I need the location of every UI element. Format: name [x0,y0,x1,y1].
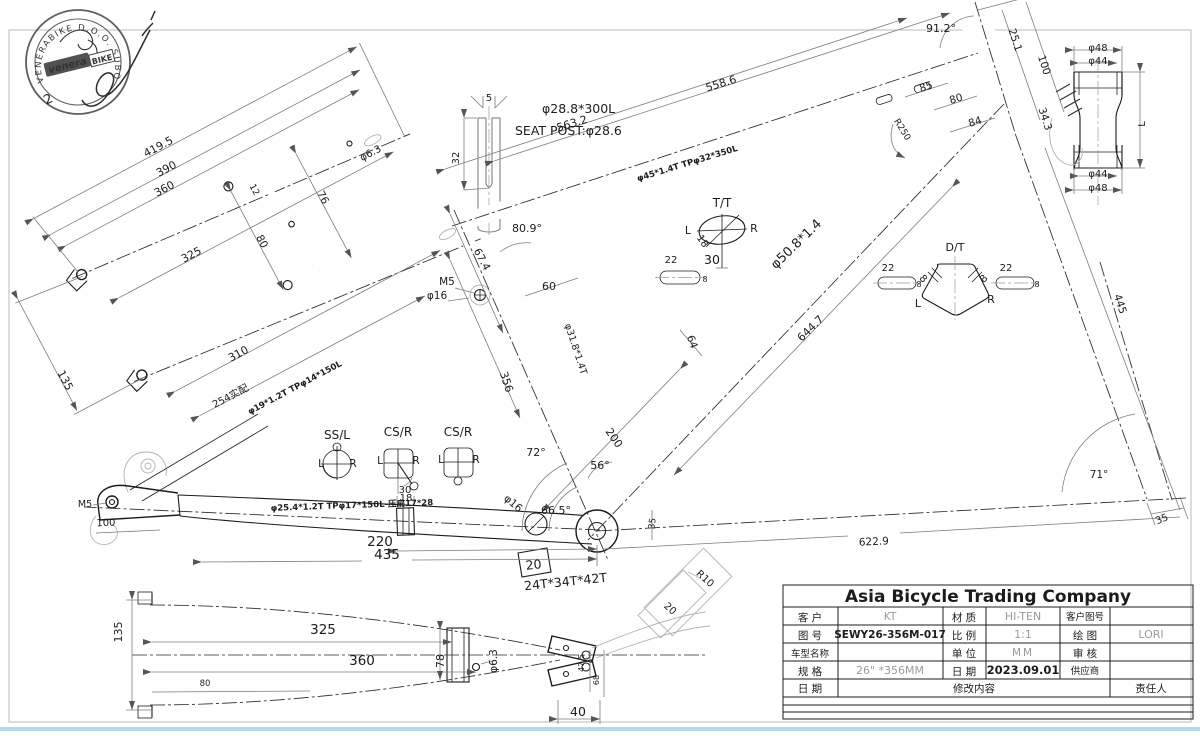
ct-dim-d63: φ6.3 [488,649,500,673]
cad-drawing: VENERABIKE D.O.O. SUBOTICA venera BIKE [0,0,1200,736]
ttd-right: R [750,222,758,235]
ss-dim-325: 325 [179,244,204,265]
slot3-8: 8 [1034,280,1039,289]
dim-35-bb: 35 [647,517,658,530]
csr2-right: R [472,454,479,466]
kickstand-20: 20 [661,601,678,618]
ss-tube-spec: φ19*1.2T TPφ14*150L [246,359,344,417]
ct-dim-360: 360 [349,653,375,669]
slot3-22: 22 [1000,263,1013,274]
slot2-22: 22 [882,263,895,274]
bottom-blue-strip [0,727,1200,731]
cs-dim-100: 100 [96,518,115,530]
tt-slot-detail [655,271,705,284]
angle-71: 71° [1090,469,1109,481]
csr1-dim-30: 30 [399,485,412,496]
head-angle: 91.2° [926,22,956,35]
ttd-dim-30: 30 [704,252,720,267]
dtd-8-right: 8 [978,273,990,285]
drawn-label: 绘 图 [1073,629,1097,642]
rev-resp-label: 责任人 [1135,682,1167,695]
supplier-label: 供应商 [1071,665,1100,677]
rev-content-label: 修改内容 [953,682,995,695]
ct-dim-47-5: 47.5 [577,654,586,672]
slot1-8: 8 [702,275,707,284]
htd-d44-bot: φ44 [1088,169,1107,180]
chainstay-top-view [126,592,710,724]
angle-56: 56° [590,459,610,472]
scale-label: 比 例 [952,629,976,642]
ss-dim-254: 254实配 [210,381,251,411]
headtube-detail [1050,46,1145,205]
ss-dim-135: 135 [54,368,75,393]
dtd-right: R [987,293,995,306]
ct-dim-68: 68 [592,675,601,685]
date-value: 2023.09.01 [987,663,1060,677]
scale-value: 1:1 [1014,628,1032,641]
ss-dim-419-5: 419.5 [141,134,175,160]
title-block: Asia Bicycle Trading Company 客 户 KT 材 质 … [783,585,1193,719]
ttd-left: L [685,224,692,237]
dt-slot-details [873,277,1039,289]
customer-value: KT [884,611,897,623]
csr2-left: L [438,454,444,466]
ct-dim-78: 78 [434,654,447,668]
st-m5: M5 [439,276,455,288]
unit-value: MM [1012,647,1034,659]
bb-20-box: 20 [525,556,542,573]
st-dim-60: 60 [542,280,556,293]
head-dim-85: 85 [918,79,934,94]
sp-dim-32: 32 [451,152,462,165]
dwg-no-value: SEWY26-356M-017 [834,629,946,641]
dtd-title: D/T [946,241,965,254]
ss-dim-360: 360 [152,178,177,199]
main-frame [84,0,1188,638]
ss-dim-80: 80 [253,233,270,250]
stamp-logo: venera BIKE [43,46,115,77]
angle-72: 72° [526,446,546,459]
slot2-8: 8 [916,280,921,289]
ct-dim-40: 40 [570,704,586,719]
drawn-value: LORI [1138,628,1163,641]
st-angle: 80.9° [512,222,542,235]
ss-dim-310: 310 [226,343,251,364]
dim-622-9: 622.9 [859,535,890,549]
csr1-right: R [412,455,419,467]
head-dim-80: 80 [948,91,964,106]
bb-gears: 24T*34T*42T [523,570,608,594]
slot1-22: 22 [665,255,678,266]
head-dim-25-1: 25.1 [1006,27,1025,53]
dtd-left: L [915,297,922,310]
model-label: 车型名称 [791,648,830,660]
ssl-left: L [318,458,324,470]
kickstand-r10: R10 [694,568,716,589]
seatstay-view [0,35,495,468]
cs-m5: M5 [78,499,92,510]
sp-dim-5: 5 [486,93,492,104]
check-label: 审 核 [1073,647,1098,660]
htd-d44-top: φ44 [1088,56,1107,67]
dim-64: 64 [684,334,700,351]
head-dim-34-3: 34.3 [1036,106,1055,132]
ct-dim-135: 135 [112,622,125,643]
ss-dim-d63: φ6.3 [358,144,383,164]
htd-d48-bot: φ48 [1088,183,1107,194]
csr1-left: L [377,455,383,467]
st-dim-356: 356 [497,370,516,394]
dim-445: 445 [1111,293,1129,316]
st-d16: φ16 [427,290,448,302]
ttd-dim-18: 18 [694,233,710,250]
spec-value: 26" *356MM [856,664,924,677]
ttd-title: T/T [712,196,732,210]
date-label: 日 期 [952,666,976,678]
ssl-section [321,443,353,480]
dwg-no-label: 图 号 [798,630,822,642]
company-stamp: VENERABIKE D.O.O. SUBOTICA venera BIKE [0,0,155,114]
unit-label: 单 位 [952,647,977,660]
material-label: 材 质 [952,611,976,624]
htd-d48-top: φ48 [1088,43,1107,54]
tt-dim-558-6: 558.6 [704,73,738,95]
company-name: Asia Bicycle Trading Company [845,587,1131,607]
ct-dim-325: 325 [310,622,336,638]
stamp-number: 2 [42,91,56,108]
section-csr-2: CS/R [444,425,472,439]
spec-label: 规 格 [798,665,823,678]
st-spec: φ31.8*1.4T [562,322,589,376]
kickstand-detail [638,548,732,638]
rev-date-label: 日 期 [798,683,822,695]
dim-35-fork: 35 [1154,512,1170,527]
dt-section [922,256,988,320]
htd-length: L [1137,121,1148,127]
drawing-sheet: VENERABIKE D.O.O. SUBOTICA venera BIKE [0,0,1200,736]
ssl-right: R [349,458,356,470]
ss-dim-390: 390 [154,158,179,179]
section-ssl: SS/L [324,428,350,442]
customer-label: 客 户 [798,611,822,624]
cust-dwg-label: 客户图号 [1066,611,1104,623]
section-csr-1: CS/R [384,425,412,439]
angle-66-5: 66.5° [541,504,571,517]
head-r250: R250 [891,117,912,142]
ss-dim-12: 12 [247,183,261,198]
dt-spec: φ50.8*1.4 [768,217,825,273]
cs-dim-435: 435 [374,547,400,563]
material-value: HI-TEN [1005,610,1041,623]
sp-spec: φ28.8*300L [542,101,615,116]
ct-dim-80: 80 [200,679,211,689]
ss-dim-76: 76 [314,189,331,207]
csr-section-2 [444,448,473,485]
head-dim-100: 100 [1035,54,1053,77]
